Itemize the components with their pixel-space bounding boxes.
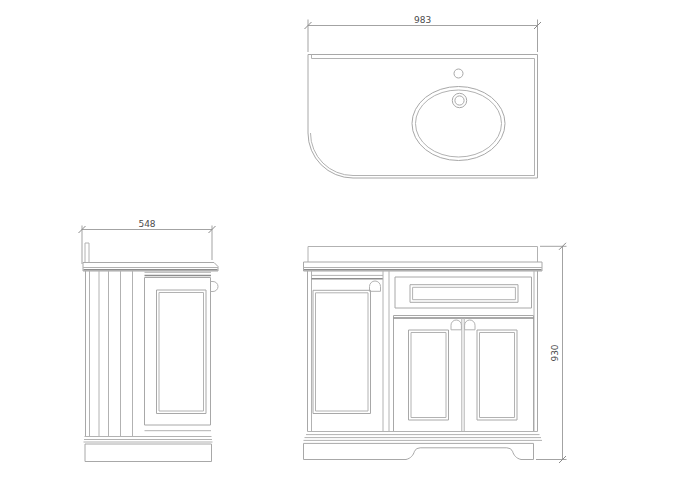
front-view-dimension: 930	[536, 243, 567, 463]
plinth-outline	[85, 444, 212, 462]
right-door-knob	[465, 320, 475, 330]
technical-drawing: 983 548	[0, 0, 700, 494]
front-view: 930	[304, 243, 567, 463]
side-view: 548	[79, 219, 219, 462]
top-view-dimension: 983	[305, 15, 542, 53]
front-drawer	[395, 277, 532, 308]
side-door	[145, 272, 219, 430]
front-double-doors	[394, 316, 534, 432]
left-door-panel-inner	[411, 333, 446, 418]
top-view: 983	[305, 15, 542, 179]
plinth-outline	[304, 443, 534, 459]
drawer-front-outline	[395, 277, 532, 308]
front-plinth	[304, 432, 543, 460]
side-view-dimension: 548	[79, 219, 216, 265]
side-plinth	[84, 437, 213, 462]
door-knob	[370, 281, 381, 291]
right-door-panel-inner	[480, 333, 515, 418]
basin-rim-outer	[412, 87, 505, 161]
overflow-hole-inner	[455, 96, 464, 105]
door-panel-outer	[157, 290, 207, 414]
door-panel-inner	[159, 293, 204, 412]
door-panel-inner	[316, 293, 369, 411]
left-door-knob	[451, 320, 461, 330]
tap-hole	[454, 69, 463, 78]
right-door-panel-outer	[477, 330, 517, 420]
drawing-canvas: 983 548	[0, 0, 700, 494]
side-panelling	[86, 271, 133, 437]
door-panel-outer	[313, 290, 371, 413]
basin-rim-inner	[416, 90, 502, 157]
front-left-door	[312, 275, 384, 413]
door-outline	[145, 278, 211, 426]
side-depth-label: 548	[138, 219, 155, 229]
plinth-arch-cutout	[406, 448, 521, 460]
upstand	[308, 247, 538, 263]
countertop-outline	[308, 55, 538, 179]
countertop-inner-edge	[311, 55, 535, 176]
front-height-label: 930	[550, 344, 560, 361]
drawer-panel-inner	[413, 287, 516, 299]
upstand-profile	[85, 243, 89, 262]
left-door-panel-outer	[409, 330, 449, 420]
top-width-label: 983	[414, 15, 431, 25]
door-knob-side	[211, 282, 219, 292]
